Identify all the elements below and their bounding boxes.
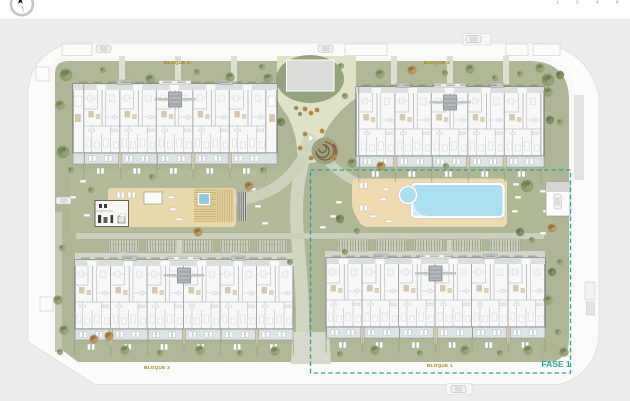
svg-text:FASE 1: FASE 1: [541, 359, 571, 369]
svg-text:BLOQUE 4: BLOQUE 4: [164, 60, 190, 65]
svg-text:BLOQUE 1: BLOQUE 1: [427, 363, 453, 368]
svg-text:BLOQUE 3: BLOQUE 3: [144, 365, 170, 370]
svg-text:BLOQUE 2: BLOQUE 2: [424, 60, 450, 65]
